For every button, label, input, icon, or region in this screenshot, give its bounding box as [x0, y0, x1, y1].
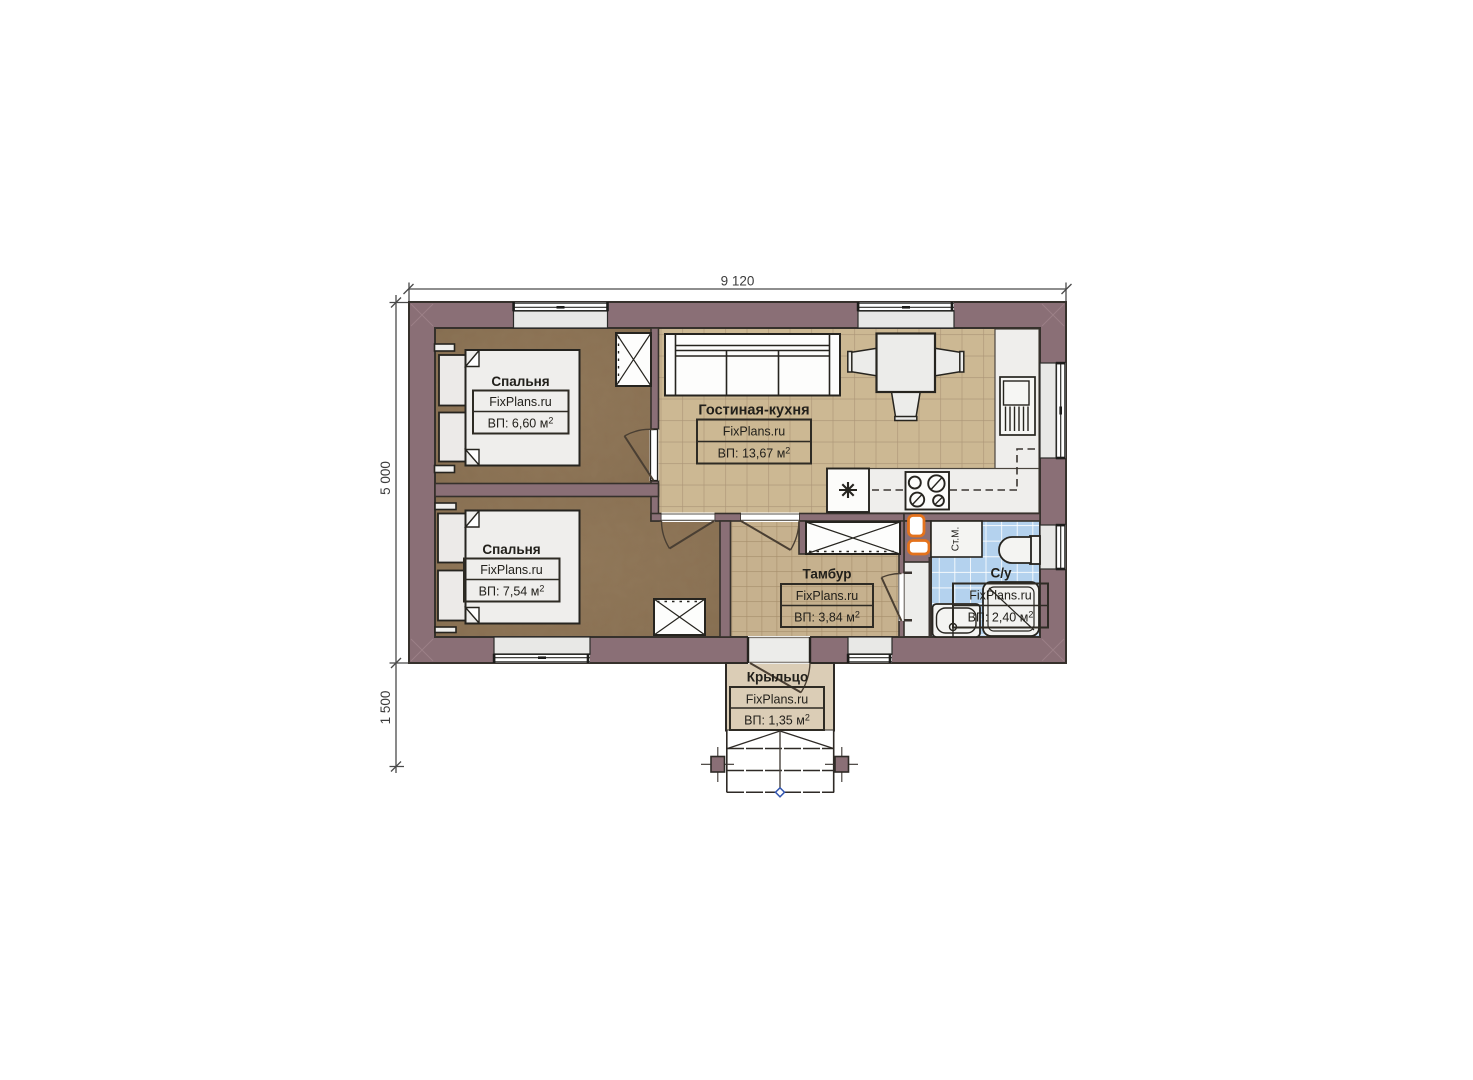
svg-text:ВП: 6,60 м2: ВП: 6,60 м2 [488, 416, 554, 431]
svg-text:Крыльцо: Крыльцо [747, 670, 808, 685]
svg-text:С/у: С/у [990, 566, 1012, 581]
svg-text:ВП: 1,35 м2: ВП: 1,35 м2 [744, 713, 810, 728]
svg-text:Спальня: Спальня [482, 542, 540, 557]
svg-text:1 500: 1 500 [378, 691, 393, 725]
svg-text:FixPlans.ru: FixPlans.ru [480, 563, 543, 577]
svg-text:FixPlans.ru: FixPlans.ru [746, 693, 809, 707]
svg-text:Тамбур: Тамбур [803, 567, 852, 582]
svg-text:Ст.М.: Ст.М. [951, 527, 962, 552]
svg-text:Гостиная-кухня: Гостиная-кухня [698, 403, 809, 419]
svg-text:ВП: 3,84 м2: ВП: 3,84 м2 [794, 610, 860, 625]
svg-text:FixPlans.ru: FixPlans.ru [969, 589, 1032, 603]
svg-text:5 000: 5 000 [378, 461, 393, 495]
svg-text:9 120: 9 120 [721, 274, 755, 289]
svg-text:Спальня: Спальня [491, 374, 549, 389]
svg-text:ВП: 13,67 м2: ВП: 13,67 м2 [718, 446, 791, 461]
svg-text:FixPlans.ru: FixPlans.ru [796, 589, 859, 603]
svg-text:FixPlans.ru: FixPlans.ru [723, 425, 786, 439]
svg-text:ВП: 2,40 м2: ВП: 2,40 м2 [968, 610, 1034, 625]
svg-text:FixPlans.ru: FixPlans.ru [489, 395, 552, 409]
svg-text:ВП: 7,54 м2: ВП: 7,54 м2 [479, 584, 545, 599]
